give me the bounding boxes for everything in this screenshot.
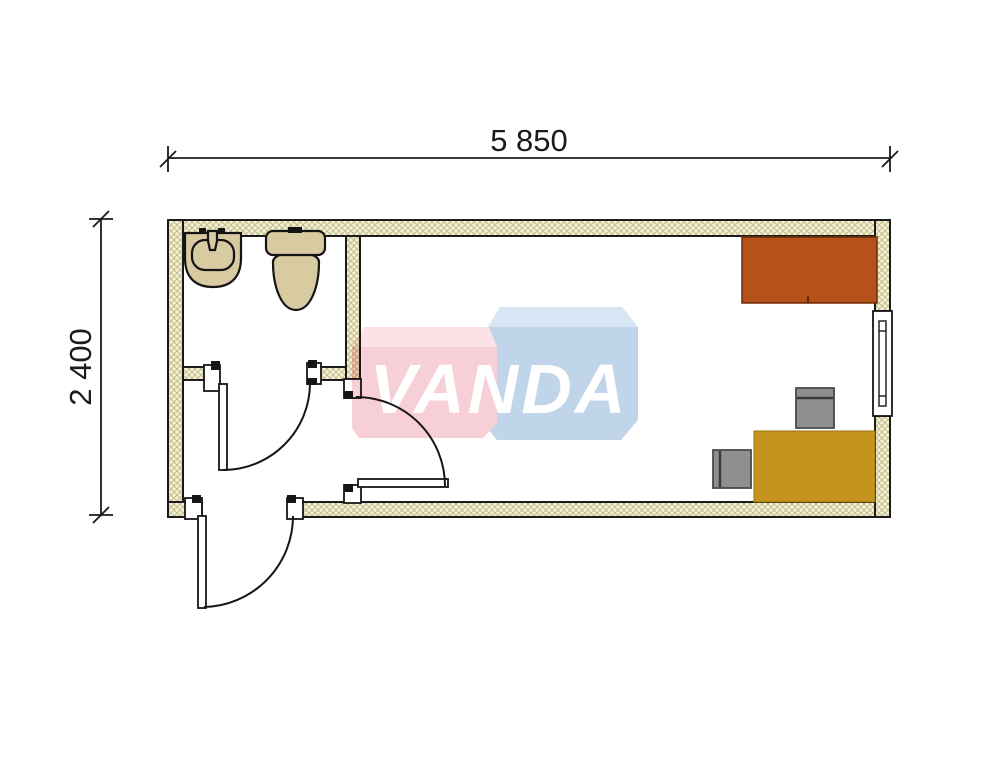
office-door-stop-top <box>344 391 353 399</box>
floor-plan-svg: VANDA 5 850 2 400 <box>0 0 1000 757</box>
door-jambs <box>185 360 361 519</box>
top-dimension: 5 850 <box>160 123 898 172</box>
watermark-front-slab-top <box>352 327 497 347</box>
office-door-stop-bottom <box>344 484 353 492</box>
bathroom-door-leaf <box>219 384 227 470</box>
bathroom-door-stop-latch-bottom <box>307 378 317 385</box>
entrance-door-leaf <box>198 516 206 608</box>
bathroom-door-swing-arc <box>223 383 310 470</box>
top-dimension-tick-right <box>882 146 898 172</box>
toilet-bowl <box>273 252 319 310</box>
chair-north <box>796 388 834 428</box>
washbasin <box>185 228 241 287</box>
toilet-tank <box>266 231 325 255</box>
wall-left <box>168 220 183 517</box>
top-dimension-tick-left <box>160 146 176 172</box>
toilet <box>266 227 325 310</box>
floor-plan-page: VANDA 5 850 2 400 <box>0 0 1000 757</box>
height-dimension-label: 2 400 <box>63 328 98 406</box>
entrance-door-stop-hinge <box>192 495 201 503</box>
left-dimension: 2 400 <box>63 211 113 523</box>
watermark-back-slab-top <box>488 307 638 327</box>
cabinet-counter <box>742 237 877 303</box>
bathroom-door-stop-hinge <box>211 361 220 370</box>
furniture <box>713 237 877 502</box>
vanda-watermark: VANDA <box>352 307 638 440</box>
entrance-door-swing-arc <box>204 516 293 607</box>
faucet-handle-left <box>199 228 206 233</box>
office-door-leaf <box>358 479 448 487</box>
toilet-flush-button <box>288 227 302 233</box>
faucet-icon <box>208 231 217 250</box>
entrance-door-stop-latch <box>287 495 296 503</box>
chair-west <box>713 450 751 488</box>
desk <box>754 431 875 502</box>
wall-right-lower <box>875 416 890 517</box>
faucet-handle-right <box>218 228 225 233</box>
wall-bottom-right <box>290 502 875 517</box>
bathroom-door-stop-latch-top <box>308 360 317 368</box>
window-glazing <box>879 321 886 406</box>
width-dimension-label: 5 850 <box>490 123 568 158</box>
window <box>873 311 892 416</box>
watermark-text: VANDA <box>370 350 629 428</box>
